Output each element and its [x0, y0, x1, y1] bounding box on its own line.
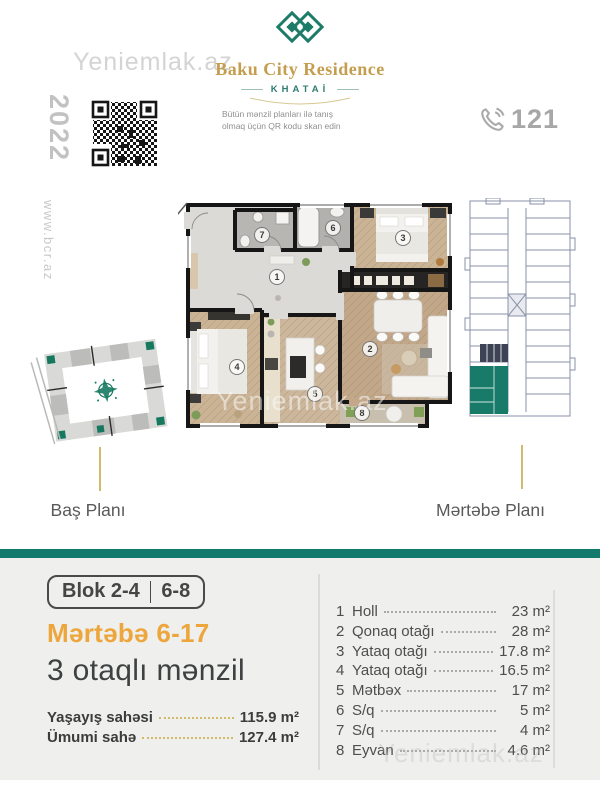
qr-caption-line2: olmaq üçün QR kodu skan edin — [222, 120, 341, 132]
room-area: 5 m² — [502, 701, 550, 721]
room-num: 7 — [336, 721, 352, 741]
block-badge-left: Blok 2-4 — [62, 580, 140, 603]
room-area: 16.5 m² — [499, 661, 550, 681]
room-number-3: 3 — [400, 233, 405, 243]
living-area-label: Yaşayış sahəsi — [47, 708, 153, 728]
brand-name: Baku City Residence — [0, 59, 600, 80]
dotted-leader — [434, 670, 494, 672]
room-row: 7 S/q 4 m² — [336, 721, 550, 741]
room-row: 2 Qonaq otağı 28 m² — [336, 622, 550, 642]
room-area: 23 m² — [502, 602, 550, 622]
total-area-row: Ümumi sahə 127.4 m² — [47, 728, 299, 748]
room-area: 17 m² — [502, 681, 550, 701]
dotted-leader — [142, 737, 233, 739]
qr-caption-line1: Bütün mənzil planları ilə tanış — [222, 108, 341, 120]
room-row: 8 Eyvan 4.6 m² — [336, 741, 550, 761]
floor-plan-pointer-line — [521, 445, 523, 489]
main-floor-plan: 1 2 3 4 5 6 7 8 — [178, 198, 458, 432]
dotted-leader — [400, 750, 496, 752]
teal-divider-bar — [0, 549, 600, 558]
room-num: 8 — [336, 741, 352, 761]
room-number-1: 1 — [274, 272, 279, 282]
living-area-row: Yaşayış sahəsi 115.9 m² — [47, 708, 299, 728]
block-badge: Blok 2-4 6-8 — [47, 575, 205, 609]
dotted-leader — [434, 651, 494, 653]
diamond-logo-icon — [268, 6, 332, 52]
room-area: 17.8 m² — [499, 642, 550, 662]
area-summary: Yaşayış sahəsi 115.9 m² Ümumi sahə 127.4… — [47, 708, 299, 748]
room-area: 28 m² — [502, 622, 550, 642]
living-area-value: 115.9 m² — [240, 708, 299, 728]
room-area: 4 m² — [502, 721, 550, 741]
room-name: S/q — [352, 701, 375, 721]
brand-district: KHATAİ — [271, 84, 329, 95]
column-divider-left — [318, 574, 320, 770]
room-number-5: 5 — [312, 389, 317, 399]
arc-ornament — [245, 96, 355, 108]
room-row: 6 S/q 5 m² — [336, 701, 550, 721]
room-num: 6 — [336, 701, 352, 721]
room-num: 5 — [336, 681, 352, 701]
compass-icon — [92, 377, 119, 404]
room-name: Eyvan — [352, 741, 394, 761]
room-row: 3 Yataq otağı 17.8 m² — [336, 642, 550, 662]
room-row: 4 Yataq otağı 16.5 m² — [336, 661, 550, 681]
room-name: Qonaq otağı — [352, 622, 435, 642]
left-rule — [241, 89, 263, 90]
right-rule — [337, 89, 359, 90]
qr-code — [91, 100, 159, 173]
room-name: Yataq otağı — [352, 661, 428, 681]
room-number-4: 4 — [234, 362, 239, 372]
block-badge-separator — [150, 581, 152, 603]
room-num: 1 — [336, 602, 352, 622]
dotted-leader — [441, 631, 496, 633]
brand-header: Baku City Residence KHATAİ — [0, 6, 600, 113]
total-area-label: Ümumi sahə — [47, 728, 136, 748]
site-plan-label: Baş Planı — [38, 500, 138, 521]
floor-plan-label: Mərtəbə Planı — [423, 500, 558, 521]
room-number-8: 8 — [359, 408, 364, 418]
year-label: 2022 — [43, 94, 74, 162]
room-name: Holl — [352, 602, 378, 622]
phone-icon — [477, 105, 507, 135]
total-area-value: 127.4 m² — [239, 728, 299, 748]
room-num: 4 — [336, 661, 352, 681]
site-plan-pointer-line — [99, 447, 101, 491]
dotted-leader — [159, 717, 234, 719]
room-num: 2 — [336, 622, 352, 642]
building-floor-plan — [464, 198, 576, 422]
qr-caption: Bütün mənzil planları ilə tanış olmaq üç… — [222, 108, 341, 132]
dotted-leader — [381, 730, 496, 732]
phone-block: 121 — [477, 104, 559, 135]
offer-column: Blok 2-4 6-8 Mərtəbə 6-17 3 otaqlı mənzi… — [47, 575, 305, 688]
dotted-leader — [384, 611, 496, 613]
highlighted-unit — [470, 366, 508, 414]
room-number-6: 6 — [330, 223, 335, 233]
column-divider-right — [553, 590, 555, 768]
dotted-leader — [381, 710, 496, 712]
block-badge-right: 6-8 — [161, 580, 190, 603]
room-number-7: 7 — [259, 230, 264, 240]
phone-number: 121 — [511, 104, 559, 135]
room-num: 3 — [336, 642, 352, 662]
flyer-page: Yeniemlak.az Baku City Residence KHATAİ … — [0, 0, 600, 800]
room-row: 1 Holl 23 m² — [336, 602, 550, 622]
room-number-2: 2 — [367, 344, 372, 354]
room-name: S/q — [352, 721, 375, 741]
room-name: Mətbəx — [352, 681, 401, 701]
dotted-leader — [407, 690, 496, 692]
site-plan — [20, 321, 195, 462]
apartment-title: 3 otaqlı mənzil — [47, 654, 305, 688]
room-list: 1 Holl 23 m² 2 Qonaq otağı 28 m² 3 Yataq… — [336, 602, 550, 760]
floors-heading: Mərtəbə 6-17 — [47, 618, 305, 649]
brand-district-row: KHATAİ — [0, 84, 600, 95]
room-area: 4.6 m² — [502, 741, 550, 761]
room-row: 5 Mətbəx 17 m² — [336, 681, 550, 701]
room-name: Yataq otağı — [352, 642, 428, 662]
website-vertical: www.bcr.az — [41, 200, 56, 281]
